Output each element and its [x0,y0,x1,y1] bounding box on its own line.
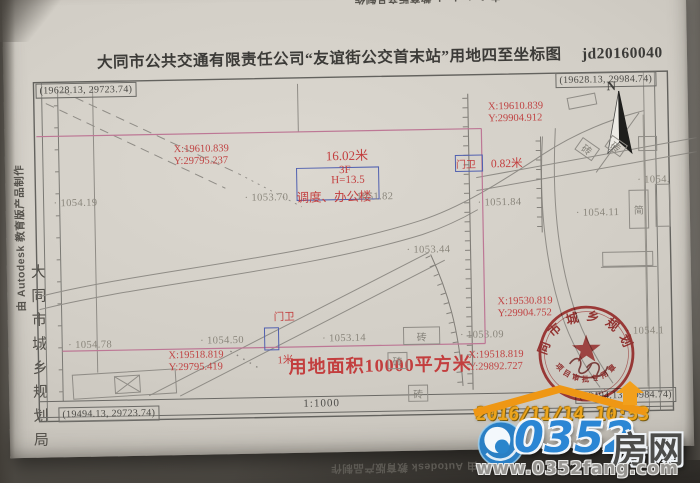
dim-east: 0.82米 [491,155,523,172]
frame-coord-top-left: (19628.13, 29723.74) [35,82,136,99]
storage-building [72,369,176,399]
spot-elevation: 1053.14 [322,333,366,345]
guard-south-label: 门卫 [274,309,295,324]
spot-elevation: 1054.19 [54,198,98,210]
spot-elevation: 1051.82 [349,191,393,203]
crossed-box-icon [114,375,140,394]
parcel-coord-ne: X:19610.839 Y:29904.912 [488,100,544,124]
spot-elevation: 1054.50 [200,335,244,347]
area-label: 用地面积10000平方米 [288,350,471,379]
dim-north: 16.02米 [326,145,369,165]
roof-swoosh-icon [462,381,662,417]
photo-edge-right [684,0,700,460]
spot-elevation: 1051.84 [478,197,522,209]
scale-label: 1:1000 [303,397,340,410]
guard-north-label: 门卫 [456,156,476,171]
spot-elevation: 1054.11 [576,207,620,219]
spot-elevation: 1054.78 [68,339,112,351]
spot-elevation: 1053.70 [244,192,288,204]
shed-structure: 简 [628,189,649,228]
office-height: H=13.5 [331,174,365,187]
spot-elevation: 1053.09 [460,329,504,341]
parcel-coord-nw: X:19610.839 Y:29795.237 [174,143,230,167]
spot-elevation: 1054. [637,174,670,186]
brick-structure: 砖 [408,385,428,402]
north-label: N [606,78,616,94]
parcel-boundary [36,129,485,352]
brick-structure: 砖 [387,352,407,369]
photo-corner-shadow [0,0,80,42]
guard-south-outline [264,327,279,350]
watermark-site-url: www.0352fang.com [476,459,678,479]
brick-structure: 砖 [403,326,440,345]
parcel-coord-se: X:19518.819 Y:29892.727 [468,349,524,373]
spot-elevation: 1053.44 [406,244,450,256]
frame-coord-bottom-left: (19494.13, 29723.74) [58,405,159,422]
parcel-coord-sw: X:19518.819 Y:29795.419 [168,349,224,373]
photo-edge-left [0,0,15,483]
north-arrow-icon [595,91,640,173]
